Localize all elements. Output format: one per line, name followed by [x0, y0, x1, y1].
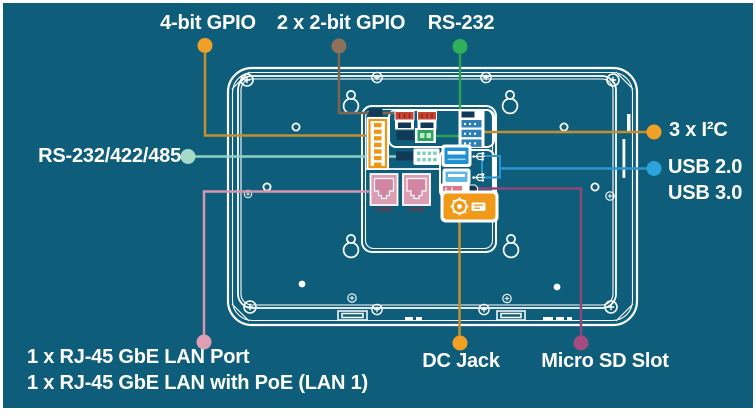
barrel-jack-icon — [451, 198, 469, 216]
label-2x2bit-gpio: 2 x 2-bit GPIO — [277, 12, 405, 35]
dot-micro-sd — [574, 336, 589, 351]
label-usb-3-0: USB 3.0 — [668, 182, 742, 205]
label-rs232-422-485: RS-232/422/485 — [38, 145, 181, 168]
label-lan-poe: 1 x RJ-45 GbE LAN with PoE (LAN 1) — [27, 372, 368, 395]
diagram-canvas: LAN2 LAN1 4-bit GPIO 2 x 2-bit GPIO RS-2… — [0, 0, 756, 416]
dot-usb — [647, 161, 662, 176]
label-usb-2-0: USB 2.0 — [668, 156, 742, 179]
label-4bit-gpio: 4-bit GPIO — [160, 12, 256, 35]
dot-4bit-gpio — [198, 38, 213, 53]
dot-rs232 — [453, 39, 468, 54]
label-dc-jack: DC Jack — [422, 350, 500, 373]
i2c-header-block — [459, 109, 485, 148]
label-rs232: RS-232 — [428, 12, 495, 35]
dot-rs485 — [181, 149, 196, 164]
dot-i2c — [647, 125, 662, 140]
gpio-header-2 — [418, 112, 437, 130]
connector-label-chip — [397, 131, 414, 140]
dc-jack — [441, 191, 499, 223]
dot-2x2bit-gpio — [332, 39, 347, 54]
dot-dc-jack — [453, 336, 468, 351]
label-lan-port: 1 x RJ-45 GbE LAN Port — [27, 346, 249, 369]
connector-label-chip — [369, 109, 383, 117]
label-i2c: 3 x I²C — [669, 119, 728, 142]
gpio-terminal-block — [367, 109, 390, 171]
label-micro-sd-slot: Micro SD Slot — [541, 350, 668, 373]
lan1-label: LAN1 — [408, 207, 425, 214]
connector-label-chip — [396, 152, 413, 161]
vent-hole — [554, 284, 561, 291]
gpio-header-1 — [395, 112, 414, 130]
vent-hole — [299, 281, 306, 288]
lan2-label: LAN2 — [376, 207, 393, 214]
